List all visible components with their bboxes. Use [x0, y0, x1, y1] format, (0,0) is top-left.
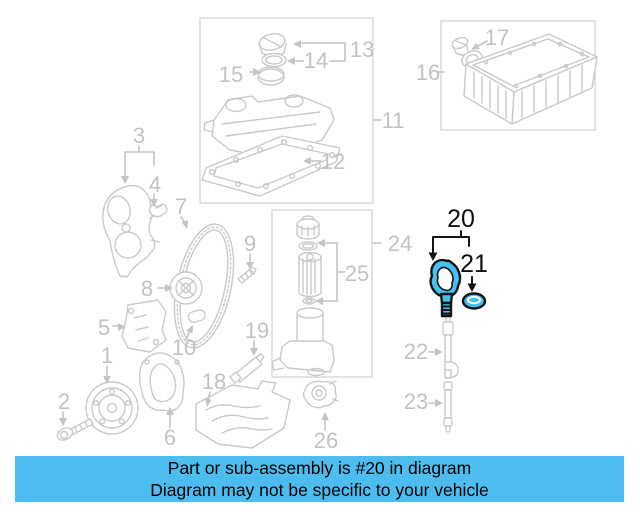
callout-18: 18 — [202, 369, 226, 394]
part-18-baffle: 18 — [196, 369, 290, 448]
callout-5: 5 — [98, 315, 110, 340]
callout-19: 19 — [245, 318, 269, 343]
callout-4: 4 — [149, 172, 161, 197]
callout-7: 7 — [175, 194, 187, 219]
callout-22: 22 — [404, 339, 428, 364]
part-4-clip: 4 — [149, 172, 167, 216]
notice-line-1: Part or sub-assembly is #20 in diagram — [15, 457, 624, 479]
callout-15: 15 — [219, 62, 243, 87]
callout-2: 2 — [58, 389, 70, 414]
part-23-dipstick-tube-lower: 23 — [404, 382, 452, 432]
callout-14: 14 — [304, 48, 328, 73]
callout-16: 16 — [416, 60, 440, 85]
callout-20: 20 — [447, 205, 475, 233]
part-21-dipstick-seal: 21 — [460, 250, 488, 309]
callout-25: 25 — [345, 261, 369, 286]
notice-line-2: Diagram may not be specific to your vehi… — [15, 479, 624, 501]
part-1-crankshaft-pulley: 1 — [86, 343, 138, 434]
part-22-dipstick-tube-upper: 22 — [404, 316, 458, 378]
callout-12: 12 — [321, 149, 345, 174]
callout-17: 17 — [485, 25, 509, 50]
part-8-tensioner-pulley: 8 — [141, 272, 202, 304]
part-19-sealant-tube: 19 — [230, 318, 269, 383]
notice-banner: Part or sub-assembly is #20 in diagram D… — [15, 456, 624, 502]
part-9-bolt: 9 — [238, 231, 256, 283]
callout-11: 11 — [382, 108, 405, 133]
part-26-oil-pump: 26 — [304, 381, 339, 453]
part-6-seal-flange: 6 — [140, 353, 184, 450]
part-25-filter-element-callout: 25 — [315, 239, 369, 305]
callout-24: 24 — [388, 231, 412, 256]
part-24-filter-housing-assembly: 24 — [272, 216, 412, 376]
callout-1: 1 — [101, 343, 113, 368]
callout-10: 10 — [172, 335, 196, 360]
callout-8: 8 — [141, 276, 153, 301]
callout-13: 13 — [350, 37, 374, 62]
callout-9: 9 — [244, 231, 256, 256]
parts-diagram-page: 3 4 7 8 9 — [0, 0, 640, 512]
callout-23: 23 — [404, 389, 428, 414]
part-7-timing-belt: 7 — [164, 194, 243, 353]
parts-diagram: 3 4 7 8 9 — [0, 0, 640, 456]
callout-21: 21 — [460, 250, 488, 278]
callout-3: 3 — [133, 123, 145, 148]
callout-6: 6 — [164, 425, 176, 450]
callout-26: 26 — [314, 428, 338, 453]
